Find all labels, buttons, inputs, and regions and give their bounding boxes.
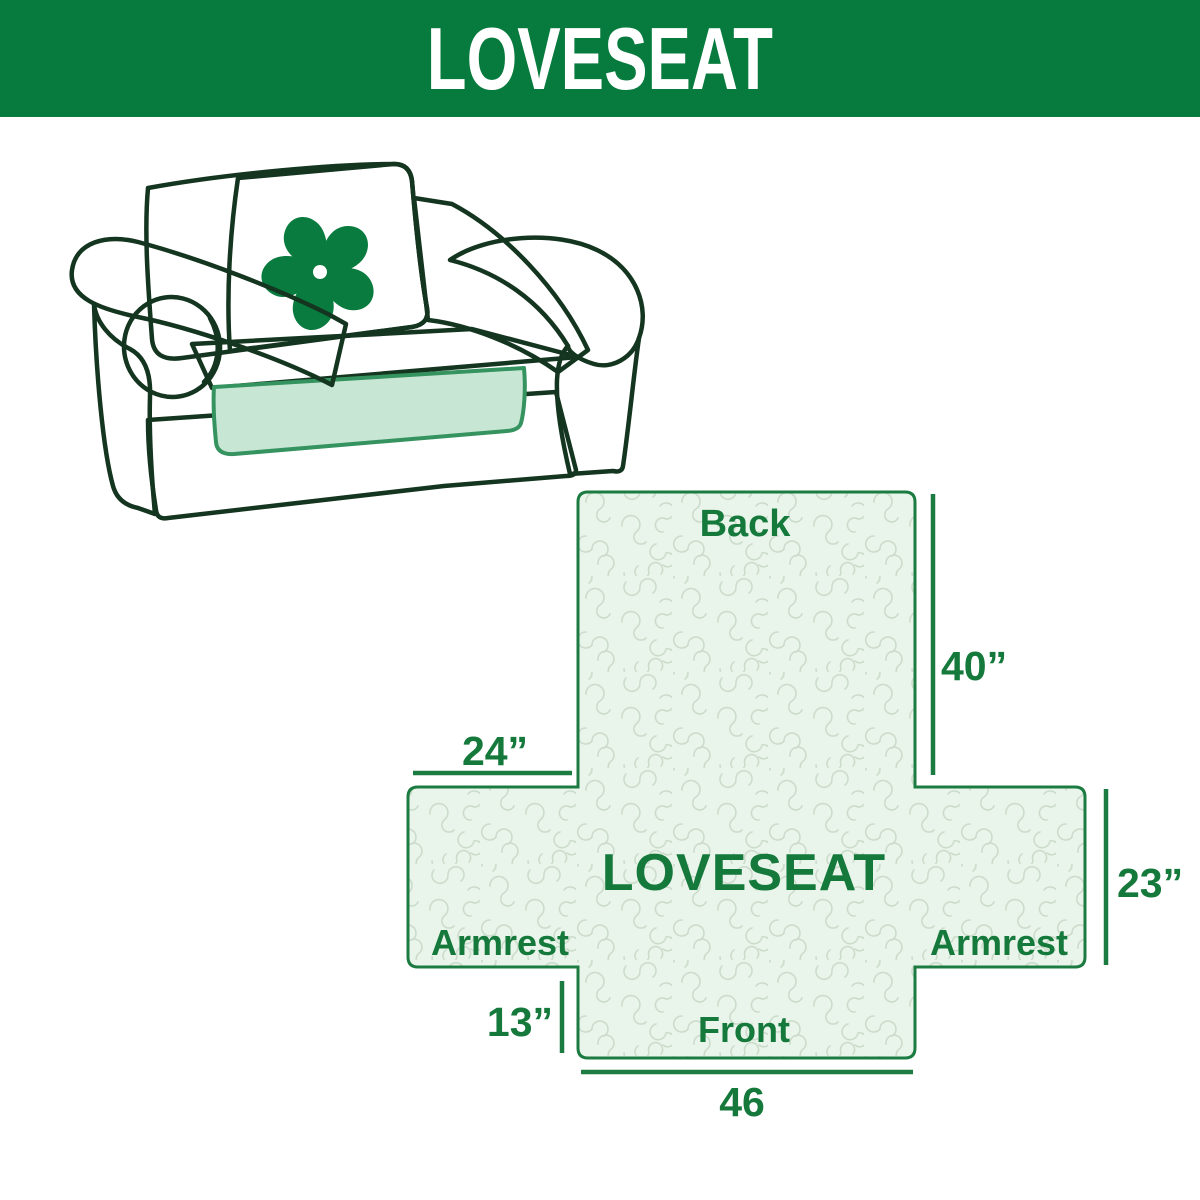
dim-front-width: 46 <box>719 1079 765 1125</box>
center-label: LOVESEAT <box>602 844 886 902</box>
dim-armrest-top: 24” <box>462 728 528 774</box>
scene-graphic: Back LOVESEAT Armrest Armrest Front 40” … <box>0 0 1200 1200</box>
dim-front-skirt: 13” <box>487 999 553 1045</box>
sofa-right-arm-roll-line <box>568 338 639 365</box>
dim-back-height: 40” <box>941 643 1007 689</box>
cover-diagram: Back LOVESEAT Armrest Armrest Front 40” … <box>408 492 1183 1125</box>
sofa-seat-skirt-cover <box>214 368 525 454</box>
page: LOVESEAT <box>0 0 1200 1200</box>
armrest-left-label: Armrest <box>431 922 569 963</box>
pinwheel-icon <box>254 212 378 337</box>
back-label: Back <box>700 503 792 545</box>
sofa-right-arm <box>450 238 643 474</box>
front-label: Front <box>698 1009 790 1050</box>
sofa-right-arm-inner-cover <box>414 198 588 372</box>
sofa-illustration <box>72 164 643 518</box>
dim-armrest-side: 23” <box>1117 860 1183 906</box>
armrest-right-label: Armrest <box>930 922 1068 963</box>
